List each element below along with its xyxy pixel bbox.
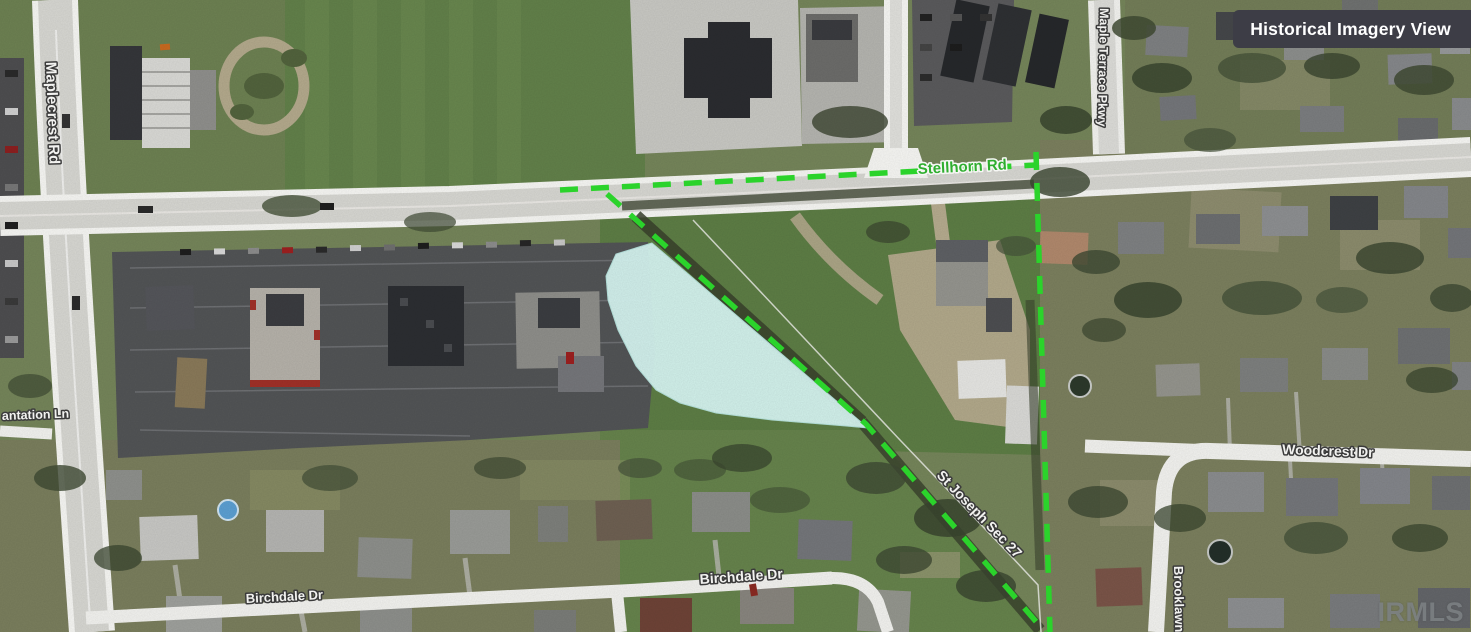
street-label-brooklawn: Brooklawn (1171, 566, 1187, 632)
street-label-maplecrest: Maplecrest Rd (42, 62, 63, 165)
street-label-woodcrest: Woodcrest Dr (1282, 441, 1375, 460)
map-canvas[interactable]: Maplecrest Rd Maple Terrace Pkwy Stellho… (0, 0, 1471, 632)
historical-imagery-view: Maplecrest Rd Maple Terrace Pkwy Stellho… (0, 0, 1471, 632)
street-label-maple-terrace: Maple Terrace Pkwy (1095, 8, 1111, 127)
historical-imagery-badge: Historical Imagery View (1233, 10, 1471, 48)
street-label-plantation: antation Ln (2, 407, 70, 423)
imagery-grain-overlay (0, 0, 1471, 632)
irmls-watermark: IRMLS (1378, 597, 1465, 628)
